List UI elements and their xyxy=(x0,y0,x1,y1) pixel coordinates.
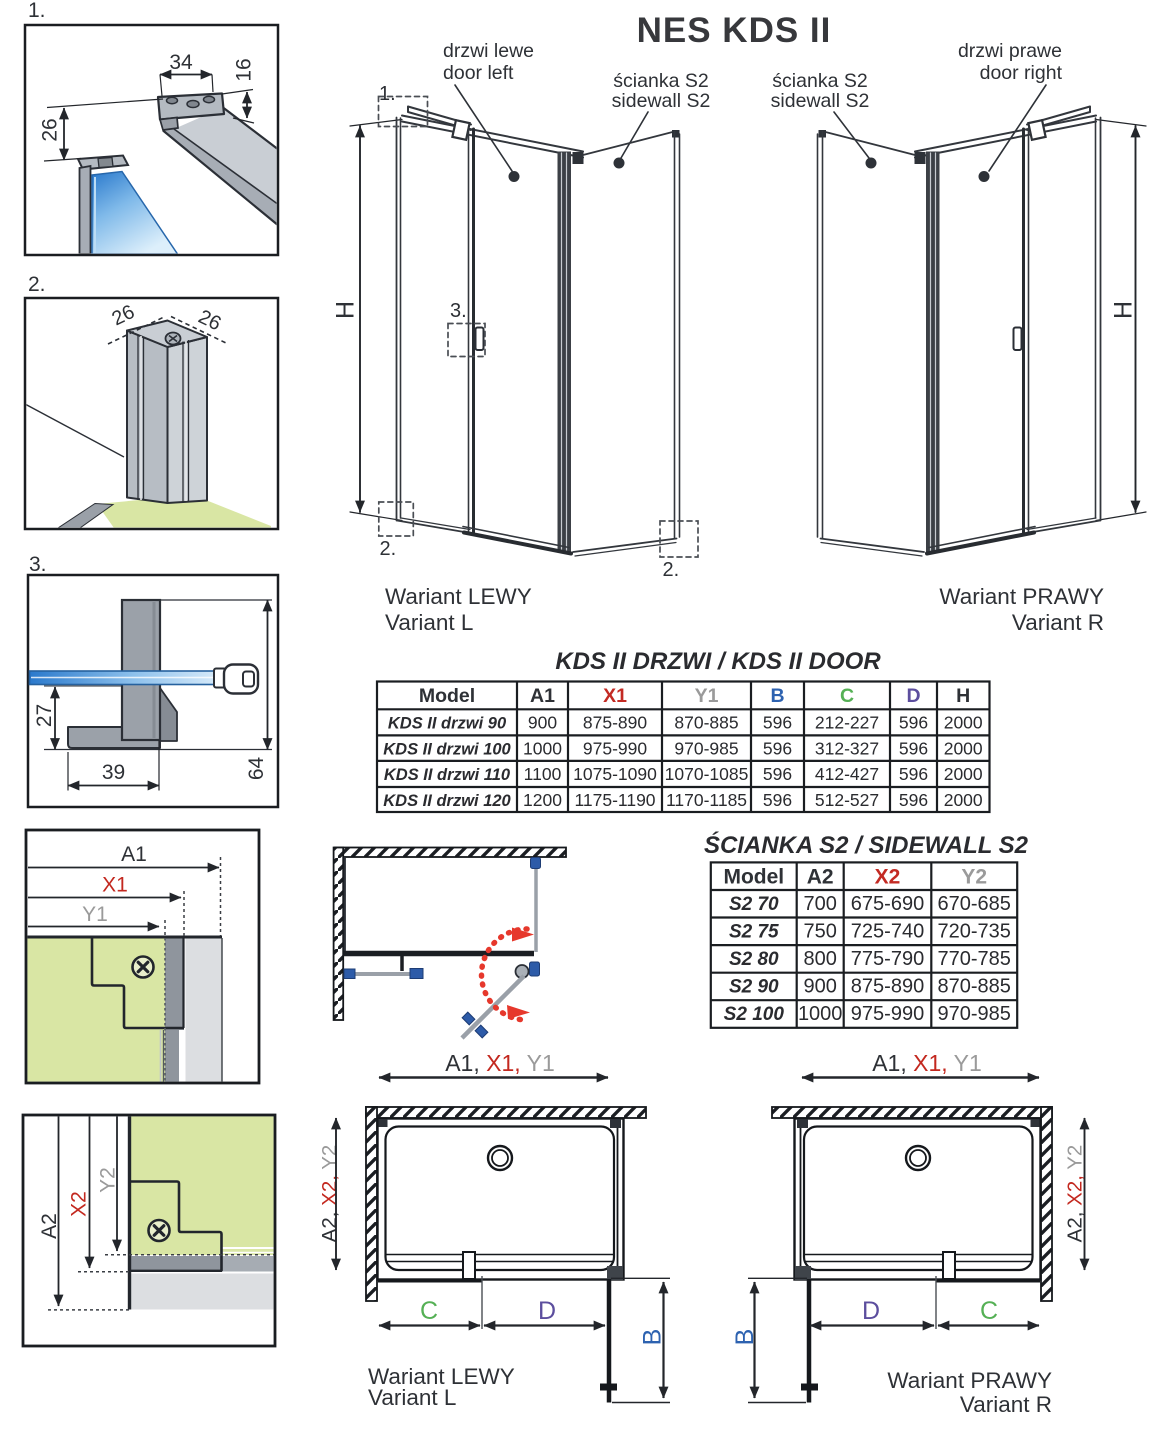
svg-text:2.: 2. xyxy=(380,538,397,560)
svg-text:Variant R: Variant R xyxy=(960,1392,1052,1417)
svg-text:2000: 2000 xyxy=(944,764,983,784)
svg-text:Model: Model xyxy=(723,865,784,888)
svg-text:1170-1185: 1170-1185 xyxy=(666,790,747,810)
svg-text:sidewall S2: sidewall S2 xyxy=(771,90,870,112)
svg-text:H: H xyxy=(956,685,970,707)
svg-text:C: C xyxy=(420,1297,438,1325)
svg-text:S2 90: S2 90 xyxy=(729,977,779,998)
svg-text:A2, X2, Y2: A2, X2, Y2 xyxy=(318,1145,341,1243)
svg-text:S2 100: S2 100 xyxy=(724,1004,785,1025)
svg-text:Variant R: Variant R xyxy=(1012,610,1104,635)
svg-text:16: 16 xyxy=(233,58,256,81)
svg-text:NES KDS II: NES KDS II xyxy=(637,11,832,50)
svg-text:ŚCIANKA S2 / SIDEWALL S2: ŚCIANKA S2 / SIDEWALL S2 xyxy=(704,831,1029,859)
svg-text:1000: 1000 xyxy=(798,1003,843,1025)
svg-text:27: 27 xyxy=(33,704,56,727)
svg-text:KDS II drzwi 120: KDS II drzwi 120 xyxy=(383,792,511,810)
svg-text:1200: 1200 xyxy=(523,790,562,810)
svg-text:Model: Model xyxy=(419,685,475,707)
svg-text:596: 596 xyxy=(899,790,928,810)
svg-text:door right: door right xyxy=(980,62,1063,84)
svg-text:596: 596 xyxy=(899,764,928,784)
svg-text:800: 800 xyxy=(804,948,837,970)
svg-text:S2 70: S2 70 xyxy=(729,894,779,915)
svg-text:750: 750 xyxy=(804,921,837,943)
svg-text:X1: X1 xyxy=(603,685,627,707)
svg-text:Y1: Y1 xyxy=(695,685,719,707)
svg-text:H: H xyxy=(1110,301,1138,319)
svg-text:725-740: 725-740 xyxy=(851,921,924,943)
svg-text:3.: 3. xyxy=(29,553,47,576)
svg-text:596: 596 xyxy=(763,713,792,733)
svg-text:900: 900 xyxy=(804,976,837,998)
svg-text:900: 900 xyxy=(528,713,557,733)
svg-text:ścianka S2: ścianka S2 xyxy=(772,70,867,92)
svg-text:2000: 2000 xyxy=(944,713,983,733)
svg-text:1.: 1. xyxy=(379,83,396,105)
svg-text:ścianka S2: ścianka S2 xyxy=(613,70,708,92)
svg-text:A1: A1 xyxy=(121,843,147,866)
svg-text:A1: A1 xyxy=(530,685,555,707)
svg-text:2.: 2. xyxy=(663,559,680,581)
svg-text:875-890: 875-890 xyxy=(583,713,647,733)
svg-text:S2 80: S2 80 xyxy=(729,949,779,970)
svg-text:KDS II drzwi 110: KDS II drzwi 110 xyxy=(384,766,511,784)
svg-text:X2: X2 xyxy=(875,865,901,888)
svg-text:970-985: 970-985 xyxy=(674,739,738,759)
svg-text:700: 700 xyxy=(804,893,837,915)
svg-text:sidewall S2: sidewall S2 xyxy=(612,90,711,112)
svg-text:2.: 2. xyxy=(28,273,46,296)
svg-text:2000: 2000 xyxy=(944,790,983,810)
svg-text:875-890: 875-890 xyxy=(851,976,924,998)
svg-text:A1, X1, Y1: A1, X1, Y1 xyxy=(872,1050,982,1076)
svg-text:Wariant LEWY: Wariant LEWY xyxy=(385,584,532,609)
svg-text:975-990: 975-990 xyxy=(583,739,647,759)
svg-text:34: 34 xyxy=(169,51,193,74)
svg-text:1075-1090: 1075-1090 xyxy=(573,764,657,784)
svg-text:door left: door left xyxy=(443,62,514,84)
svg-text:Variant L: Variant L xyxy=(368,1385,456,1410)
svg-text:drzwi lewe: drzwi lewe xyxy=(443,40,534,62)
svg-text:596: 596 xyxy=(763,739,792,759)
svg-text:1070-1085: 1070-1085 xyxy=(665,764,749,784)
svg-text:Y1: Y1 xyxy=(82,903,108,926)
svg-text:Y2: Y2 xyxy=(961,865,987,888)
svg-text:X2: X2 xyxy=(68,1191,91,1217)
svg-text:970-985: 970-985 xyxy=(937,1003,1010,1025)
svg-text:2000: 2000 xyxy=(944,739,983,759)
svg-text:Wariant PRAWY: Wariant PRAWY xyxy=(887,1368,1052,1393)
svg-text:B: B xyxy=(770,685,784,707)
svg-text:312-327: 312-327 xyxy=(815,739,879,759)
svg-text:870-885: 870-885 xyxy=(937,976,1010,998)
svg-text:596: 596 xyxy=(763,764,792,784)
svg-text:1175-1190: 1175-1190 xyxy=(574,790,655,810)
svg-text:775-790: 775-790 xyxy=(851,948,924,970)
svg-text:670-685: 670-685 xyxy=(937,893,1010,915)
svg-text:S2 75: S2 75 xyxy=(729,922,779,943)
svg-text:KDS II DRZWI / KDS II DOOR: KDS II DRZWI / KDS II DOOR xyxy=(555,648,881,675)
svg-text:720-735: 720-735 xyxy=(937,921,1010,943)
svg-text:KDS II drzwi 100: KDS II drzwi 100 xyxy=(383,741,511,759)
svg-text:B: B xyxy=(639,1329,667,1346)
svg-text:212-227: 212-227 xyxy=(815,713,879,733)
svg-text:D: D xyxy=(862,1297,880,1325)
svg-text:D: D xyxy=(906,685,920,707)
svg-text:64: 64 xyxy=(245,757,268,781)
svg-text:D: D xyxy=(538,1297,556,1325)
svg-text:412-427: 412-427 xyxy=(815,764,879,784)
svg-text:26: 26 xyxy=(39,118,62,141)
svg-text:A2: A2 xyxy=(38,1213,61,1239)
svg-text:KDS II drzwi 90: KDS II drzwi 90 xyxy=(388,715,507,733)
svg-text:512-527: 512-527 xyxy=(815,790,879,810)
svg-text:596: 596 xyxy=(899,739,928,759)
svg-text:Wariant PRAWY: Wariant PRAWY xyxy=(939,584,1104,609)
svg-text:A1, X1, Y1: A1, X1, Y1 xyxy=(445,1050,555,1076)
svg-text:A2: A2 xyxy=(807,865,834,888)
svg-text:1000: 1000 xyxy=(523,739,562,759)
svg-text:975-990: 975-990 xyxy=(851,1003,924,1025)
svg-text:39: 39 xyxy=(102,761,125,784)
svg-text:C: C xyxy=(980,1297,998,1325)
svg-text:1100: 1100 xyxy=(524,764,562,784)
svg-text:drzwi prawe: drzwi prawe xyxy=(958,40,1062,62)
svg-text:1.: 1. xyxy=(28,0,46,22)
svg-text:X1: X1 xyxy=(102,874,128,897)
svg-text:596: 596 xyxy=(899,713,928,733)
svg-text:A2, X2, Y2: A2, X2, Y2 xyxy=(1064,1145,1087,1243)
svg-text:770-785: 770-785 xyxy=(937,948,1010,970)
svg-text:C: C xyxy=(840,685,854,707)
svg-text:Variant L: Variant L xyxy=(385,610,473,635)
svg-text:H: H xyxy=(332,301,360,319)
svg-text:Y2: Y2 xyxy=(97,1167,120,1193)
svg-text:870-885: 870-885 xyxy=(674,713,738,733)
svg-text:3.: 3. xyxy=(450,300,467,322)
svg-text:675-690: 675-690 xyxy=(851,893,924,915)
svg-text:596: 596 xyxy=(763,790,792,810)
